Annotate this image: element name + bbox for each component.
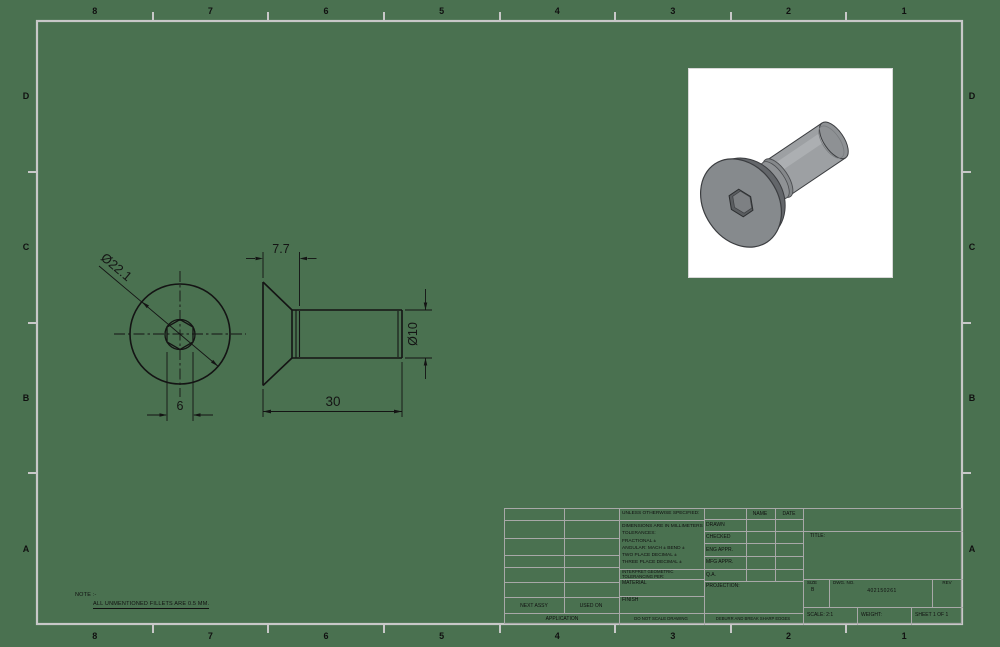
projection-label: PROJECTION: [706, 584, 740, 589]
spec-line: FRACTIONAL ± [622, 538, 703, 545]
name-header: NAME [753, 512, 767, 517]
spec-line: TOLERANCES: [622, 530, 703, 537]
dwg-no-label: DWG. NO. [833, 581, 855, 586]
spec-line: THREE PLACE DECIMAL ± [622, 559, 703, 566]
side-view: 7.7 30 Ø10 [246, 242, 432, 417]
rev-label: REV [942, 581, 951, 586]
size-value: B [811, 588, 814, 593]
dim-text-head-length: 7.7 [272, 242, 289, 256]
approval-row-checked: CHECKED [706, 535, 730, 540]
drawing-note: NOTE :- ALL UNMENTIONED FILLETS ARE 0.5 … [75, 592, 209, 607]
scale-label: SCALE: 2:1 [807, 613, 833, 618]
dim-text-shank-diameter: Ø10 [406, 322, 420, 346]
do-not-scale-label: DO NOT SCALE DRAWING [634, 617, 688, 621]
approval-row-qa: Q.A. [706, 573, 716, 578]
isometric-screw-render [689, 69, 892, 277]
spec-header: UNLESS OTHERWISE SPECIFIED: [622, 512, 699, 517]
size-label: SIZE [807, 581, 817, 586]
material-label: MATERIAL [622, 581, 647, 586]
note-line2: ALL UNMENTIONED FILLETS ARE 0.5 MM. [93, 601, 209, 609]
title-block: NEXT ASSY USED ON APPLICATION UNLESS OTH… [504, 508, 962, 624]
dim-head-diameter [99, 266, 218, 366]
isometric-view-box [688, 68, 893, 278]
drawing-sheet: 8877665544332211DDCCBBAA Ø22.1 [0, 0, 1000, 647]
note-line1: NOTE :- [75, 592, 209, 598]
application-label: APPLICATION [546, 617, 579, 622]
arrowhead [256, 257, 264, 261]
arrowhead [300, 257, 308, 261]
front-view: Ø22.1 6 [98, 250, 246, 421]
arrowhead [424, 303, 428, 311]
weight-label: WEIGHT: [861, 613, 882, 618]
arrowhead [193, 413, 201, 417]
deburr-label: DEBURR AND BREAK SHARP EDGES [716, 617, 790, 621]
finish-label: FINISH [622, 598, 638, 603]
dim-text-overall-length: 30 [325, 394, 340, 409]
approval-row-mfg-appr: MFG APPR. [706, 560, 733, 565]
approval-row-drawn: DRAWN [706, 523, 725, 528]
interpret-line2: TOLERANCING PER: [622, 575, 664, 579]
screw-profile [263, 282, 402, 386]
dwg-number: 402150261 [867, 589, 897, 594]
approval-row-eng-appr: ENG APPR. [706, 548, 733, 553]
arrowhead [160, 413, 168, 417]
spec-line: TWO PLACE DECIMAL ± [622, 552, 703, 559]
dim-text-head-diameter: Ø22.1 [98, 250, 135, 284]
next-assy-label: NEXT ASSY [520, 604, 548, 609]
spec-line: DIMENSIONS ARE IN MILLIMETERS [622, 523, 703, 530]
dim-head-length [246, 252, 317, 306]
used-on-label: USED ON [580, 604, 603, 609]
title-label: TITLE: [810, 534, 825, 539]
spec-line: ANGULAR: MACH ± BEND ± [622, 545, 703, 552]
arrowhead [424, 358, 428, 366]
date-header: DATE [783, 512, 796, 517]
arrowhead [394, 410, 402, 414]
spec-lines: DIMENSIONS ARE IN MILLIMETERS TOLERANCES… [622, 523, 703, 567]
sheet-label: SHEET 1 OF 1 [915, 613, 948, 618]
arrowhead [263, 410, 271, 414]
dim-text-hex-width: 6 [177, 399, 184, 413]
